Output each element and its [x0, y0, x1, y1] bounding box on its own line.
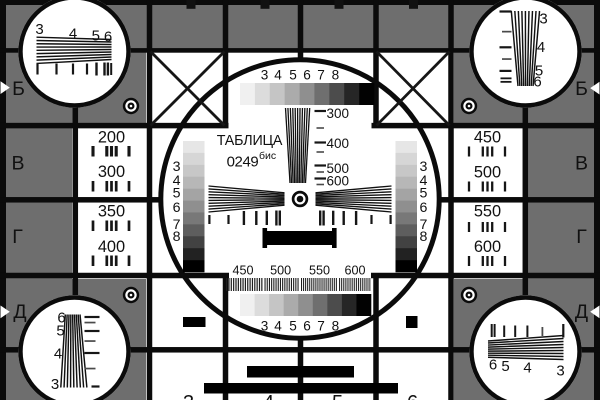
- svg-text:5: 5: [289, 68, 297, 83]
- svg-text:7: 7: [317, 68, 325, 83]
- svg-text:450: 450: [474, 129, 501, 147]
- svg-text:Б: Б: [575, 78, 588, 100]
- svg-text:5: 5: [501, 358, 509, 375]
- svg-text:5: 5: [332, 392, 343, 400]
- svg-text:3: 3: [51, 376, 59, 393]
- svg-text:3: 3: [183, 392, 194, 400]
- svg-text:550: 550: [474, 202, 501, 220]
- svg-text:4: 4: [69, 25, 77, 42]
- svg-text:В: В: [11, 153, 24, 175]
- svg-text:550: 550: [309, 263, 330, 277]
- svg-text:5: 5: [289, 318, 297, 333]
- svg-text:Б: Б: [12, 78, 25, 100]
- svg-text:7: 7: [317, 318, 325, 333]
- svg-text:4: 4: [274, 318, 282, 333]
- svg-text:300: 300: [98, 163, 125, 181]
- svg-text:6: 6: [303, 68, 311, 83]
- svg-text:6: 6: [407, 392, 418, 400]
- svg-text:Г: Г: [576, 226, 587, 248]
- svg-text:8: 8: [332, 68, 340, 83]
- svg-text:450: 450: [232, 263, 253, 277]
- svg-text:4: 4: [54, 346, 62, 363]
- svg-text:600: 600: [344, 263, 365, 277]
- svg-text:200: 200: [98, 129, 125, 147]
- svg-text:8: 8: [173, 229, 181, 245]
- svg-text:В: В: [575, 153, 588, 175]
- svg-text:Д: Д: [575, 301, 588, 323]
- svg-text:300: 300: [327, 106, 350, 121]
- svg-text:6: 6: [489, 357, 497, 374]
- svg-text:600: 600: [474, 238, 501, 256]
- svg-text:бис: бис: [259, 150, 276, 162]
- svg-text:4: 4: [537, 39, 545, 56]
- svg-text:Д: Д: [13, 301, 26, 323]
- svg-text:ТАБЛИЦА: ТАБЛИЦА: [217, 133, 283, 149]
- svg-text:3: 3: [261, 318, 269, 333]
- svg-text:6: 6: [303, 318, 311, 333]
- svg-text:500: 500: [474, 164, 501, 182]
- svg-text:3: 3: [261, 68, 269, 83]
- svg-text:0249: 0249: [227, 154, 259, 171]
- svg-text:4: 4: [274, 68, 282, 83]
- svg-text:6: 6: [420, 200, 428, 216]
- svg-text:3: 3: [35, 21, 43, 38]
- svg-text:500: 500: [270, 263, 291, 277]
- svg-text:350: 350: [98, 202, 125, 220]
- svg-text:Г: Г: [12, 226, 23, 248]
- svg-text:4: 4: [263, 392, 274, 400]
- svg-text:6: 6: [104, 28, 112, 45]
- svg-text:4: 4: [523, 360, 531, 377]
- svg-text:8: 8: [332, 318, 340, 333]
- svg-text:3: 3: [539, 10, 547, 27]
- svg-text:8: 8: [420, 229, 428, 245]
- svg-text:400: 400: [98, 238, 125, 256]
- svg-text:5: 5: [92, 28, 100, 45]
- svg-text:5: 5: [56, 322, 64, 339]
- svg-text:600: 600: [327, 174, 350, 189]
- svg-text:400: 400: [327, 136, 350, 151]
- svg-text:3: 3: [556, 362, 564, 379]
- svg-text:6: 6: [173, 200, 181, 216]
- svg-text:6: 6: [533, 74, 541, 91]
